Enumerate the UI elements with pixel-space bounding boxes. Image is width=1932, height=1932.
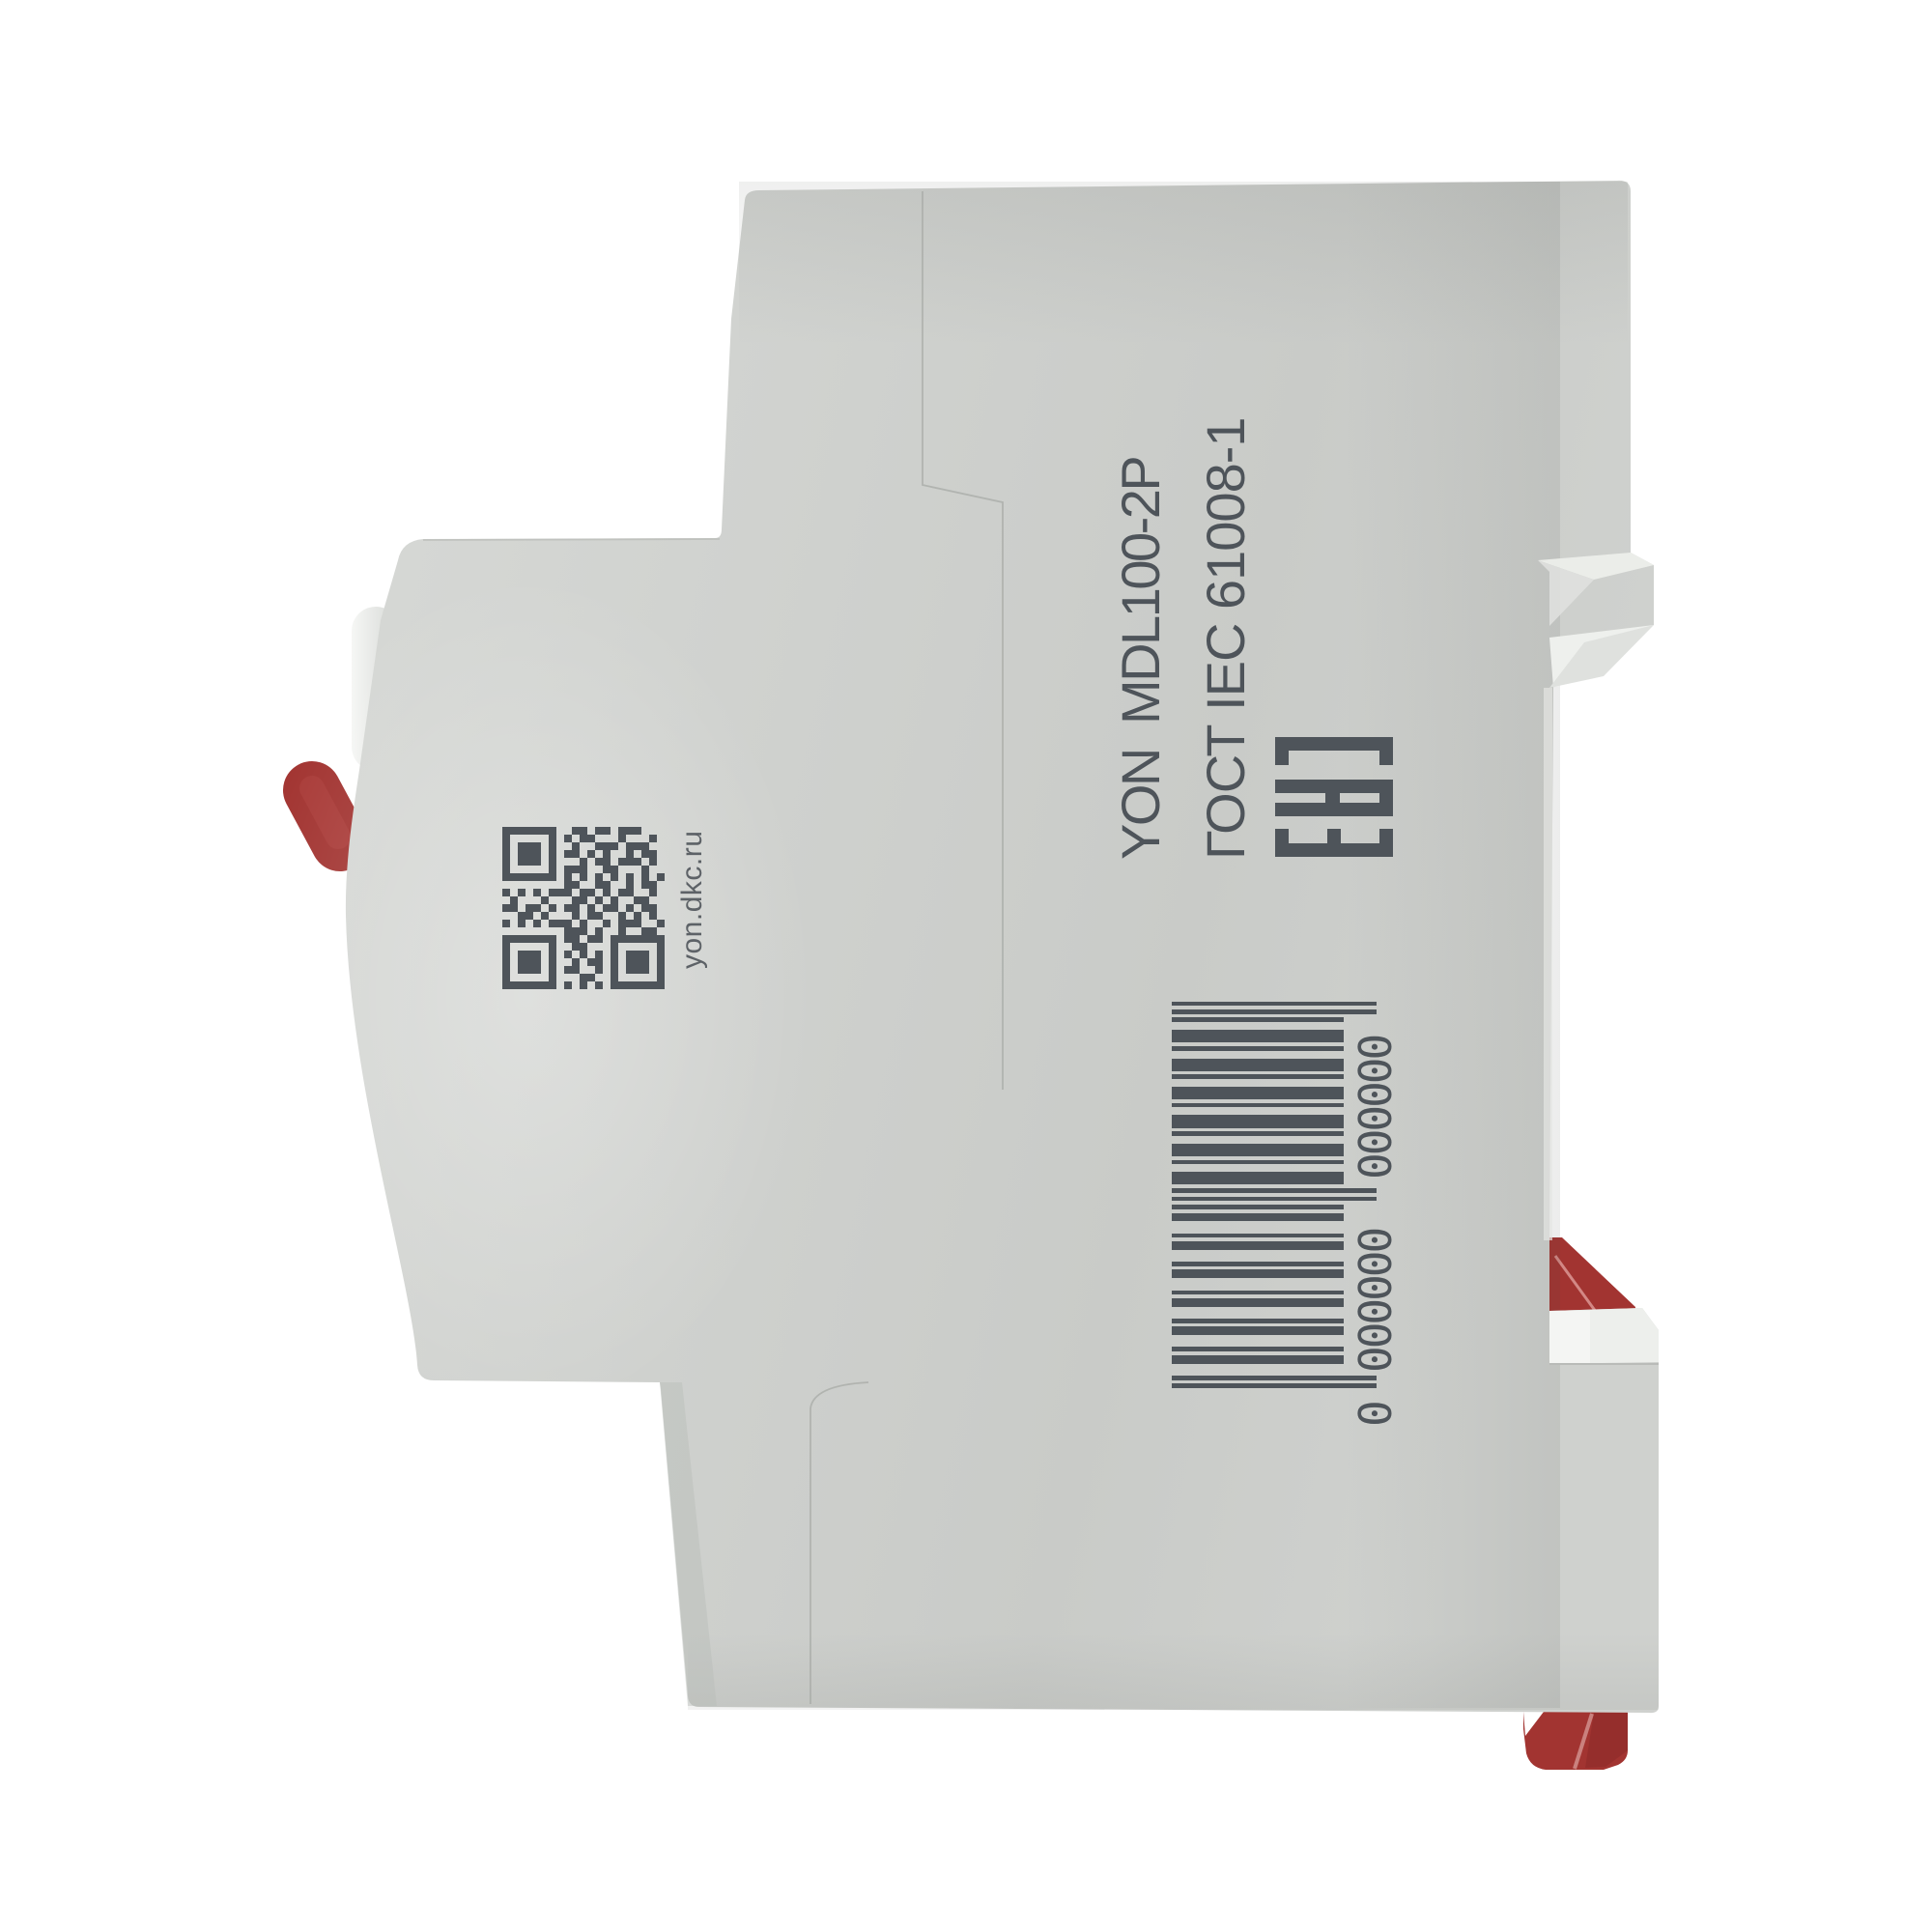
barcode-group1: 000000 xyxy=(1350,1230,1402,1373)
barcode-lead-digit: 0 xyxy=(1350,1403,1402,1427)
din-clip-middle-icon xyxy=(1549,1237,1635,1317)
qr-code-icon xyxy=(502,827,665,989)
din-step-block xyxy=(1549,1308,1659,1364)
qr-caption: yon.dkc.ru xyxy=(676,845,711,969)
barcode-digits: 0 000000 000000 xyxy=(1350,997,1398,1427)
right-side-shading xyxy=(1343,182,1560,1708)
bottom-shading xyxy=(688,1633,1659,1710)
device-illustration xyxy=(0,0,1932,1932)
barcode-group2: 000000 xyxy=(1350,1037,1402,1179)
barcode: 0 000000 000000 xyxy=(1172,997,1398,1427)
din-clip-bottom-icon xyxy=(1523,1712,1628,1770)
top-shading xyxy=(739,182,1628,346)
barcode-bars xyxy=(1172,1002,1377,1388)
standard-label: ГОСТ IEC 61008-1 xyxy=(1196,423,1258,860)
panel-highlight xyxy=(237,570,816,1420)
product-photo-rcd-side-view: YON MDL100-2P ГОСТ IEC 61008-1 yon.dkc.r… xyxy=(0,0,1932,1932)
model-label: YON MDL100-2P xyxy=(1111,473,1173,860)
